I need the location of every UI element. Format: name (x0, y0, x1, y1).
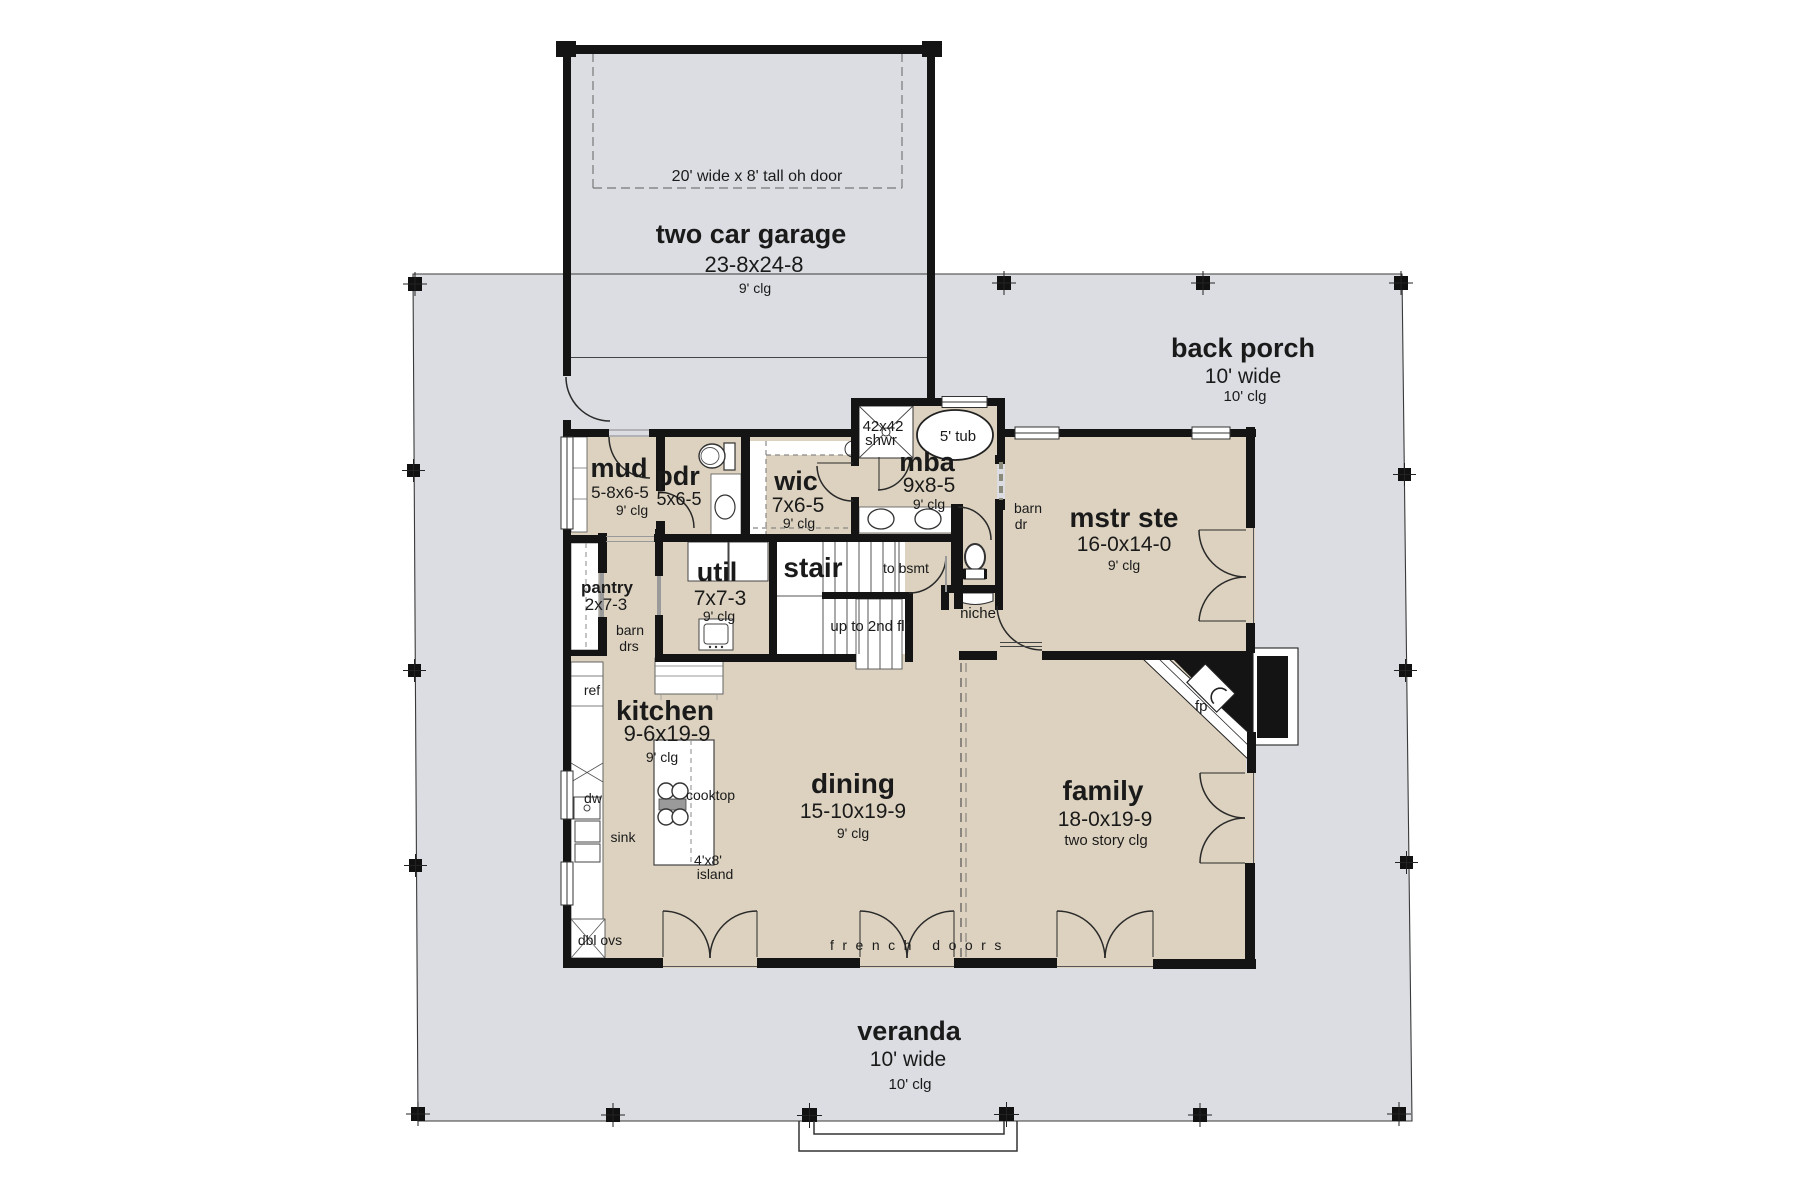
svg-text:9-6x19-9: 9-6x19-9 (624, 721, 711, 746)
svg-text:shwr: shwr (865, 432, 897, 449)
svg-text:7x7-3: 7x7-3 (694, 587, 747, 610)
svg-text:9' clg: 9' clg (1108, 557, 1140, 573)
svg-text:9x8-5: 9x8-5 (903, 474, 956, 497)
svg-text:two car garage: two car garage (656, 219, 847, 249)
svg-text:9' clg: 9' clg (646, 749, 678, 765)
svg-text:fp: fp (1195, 698, 1208, 715)
svg-text:9' clg: 9' clg (837, 825, 869, 841)
svg-text:15-10x19-9: 15-10x19-9 (800, 800, 906, 823)
svg-text:veranda: veranda (857, 1016, 962, 1046)
svg-text:9' clg: 9' clg (739, 280, 771, 296)
svg-text:5-8x6-5: 5-8x6-5 (591, 483, 649, 502)
svg-text:ref: ref (584, 682, 600, 698)
svg-text:10' clg: 10' clg (1224, 388, 1267, 405)
svg-text:9' clg: 9' clg (913, 496, 945, 512)
svg-text:5' tub: 5' tub (940, 428, 976, 445)
svg-text:2x7-3: 2x7-3 (585, 595, 628, 614)
svg-text:dr: dr (1015, 516, 1028, 532)
svg-text:dbl ovs: dbl ovs (578, 932, 622, 948)
svg-text:18-0x19-9: 18-0x19-9 (1058, 808, 1153, 831)
svg-text:5x6-5: 5x6-5 (656, 489, 701, 509)
svg-text:french doors: french doors (830, 937, 1010, 953)
svg-text:family: family (1063, 775, 1144, 806)
svg-text:mba: mba (899, 447, 956, 477)
svg-text:9' clg: 9' clg (616, 502, 648, 518)
svg-text:23-8x24-8: 23-8x24-8 (704, 252, 803, 277)
svg-text:cooktop: cooktop (686, 787, 735, 803)
svg-text:up to 2nd flr: up to 2nd flr (830, 618, 909, 635)
svg-text:two story clg: two story clg (1064, 832, 1147, 849)
svg-text:mud: mud (591, 453, 648, 483)
svg-text:dining: dining (811, 768, 895, 799)
svg-text:mstr ste: mstr ste (1070, 502, 1179, 533)
svg-text:sink: sink (611, 829, 637, 845)
svg-text:10' wide: 10' wide (870, 1048, 946, 1071)
svg-text:7x6-5: 7x6-5 (772, 494, 825, 517)
svg-text:16-0x14-0: 16-0x14-0 (1077, 533, 1172, 556)
svg-text:drs: drs (619, 638, 638, 654)
svg-text:island: island (697, 866, 734, 882)
svg-text:20' wide x 8' tall oh door: 20' wide x 8' tall oh door (672, 168, 843, 185)
svg-text:10' clg: 10' clg (889, 1076, 932, 1093)
svg-text:util: util (697, 557, 738, 587)
svg-text:niche: niche (960, 605, 996, 622)
svg-text:barn: barn (616, 622, 644, 638)
svg-text:stair: stair (783, 552, 842, 583)
svg-text:10' wide: 10' wide (1205, 365, 1281, 388)
svg-text:back porch: back porch (1171, 333, 1315, 363)
svg-text:barn: barn (1014, 500, 1042, 516)
svg-text:pdr: pdr (656, 461, 700, 491)
svg-text:dw: dw (584, 790, 603, 806)
svg-text:9' clg: 9' clg (783, 515, 815, 531)
svg-text:wic: wic (773, 466, 818, 496)
svg-text:to bsmt: to bsmt (883, 560, 929, 576)
svg-text:9' clg: 9' clg (703, 608, 735, 624)
